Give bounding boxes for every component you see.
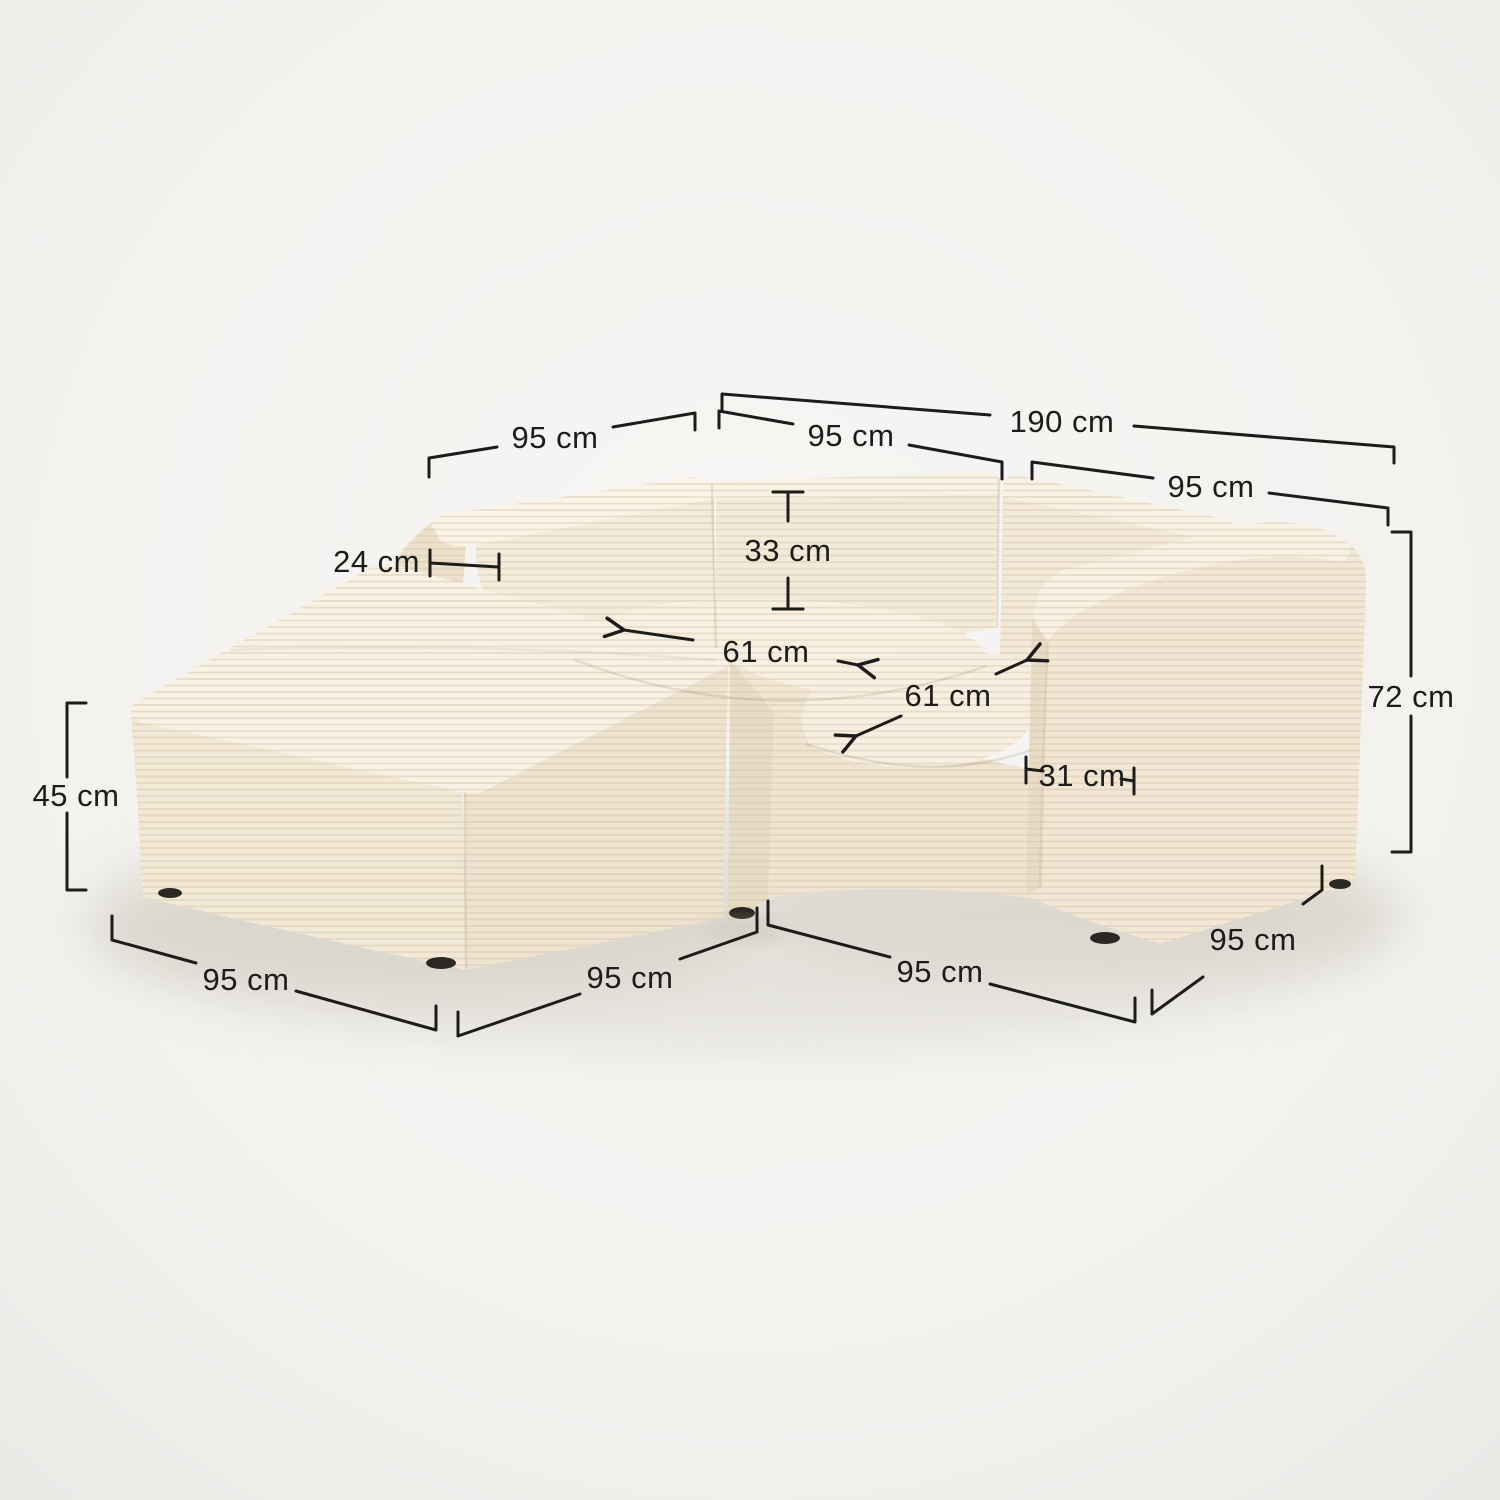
- sofa-dimension-illustration: 190 cm 95 cm 95 cm 95 cm 24 cm 33 cm 61 …: [0, 0, 1500, 1500]
- dimension-label-total-width: 190 cm: [1010, 404, 1115, 439]
- dimension-label-backrest-height: 33 cm: [745, 533, 832, 568]
- dimension-label-seat-depth-right: 61 cm: [905, 678, 992, 713]
- product-dimension-diagram: 190 cm 95 cm 95 cm 95 cm 24 cm 33 cm 61 …: [0, 0, 1500, 1500]
- dimension-label-side-right-depth: 95 cm: [1210, 922, 1297, 957]
- dimension-label-ottoman-height: 45 cm: [33, 778, 120, 813]
- dimension-label-seat-depth-left: 61 cm: [723, 634, 810, 669]
- sofa-foot: [158, 888, 182, 898]
- dimension-label-module-right-width: 95 cm: [1168, 469, 1255, 504]
- sofa-foot: [426, 957, 456, 969]
- dim-armrest-width: 31 cm: [1026, 757, 1134, 794]
- dimension-label-ottoman-width: 95 cm: [203, 962, 290, 997]
- dimension-label-back-left-depth: 95 cm: [512, 420, 599, 455]
- dimension-label-backrest-thickness: 24 cm: [333, 544, 420, 579]
- dimension-label-front-left-width: 95 cm: [587, 960, 674, 995]
- dimension-label-total-height: 72 cm: [1368, 679, 1455, 714]
- sofa-foot: [1329, 879, 1351, 889]
- dimension-label-module-left-width: 95 cm: [808, 418, 895, 453]
- dimension-label-front-right-width: 95 cm: [897, 954, 984, 989]
- sofa-foot: [729, 907, 755, 919]
- sofa-foot: [1090, 932, 1120, 944]
- dimension-label-armrest-width: 31 cm: [1039, 758, 1126, 793]
